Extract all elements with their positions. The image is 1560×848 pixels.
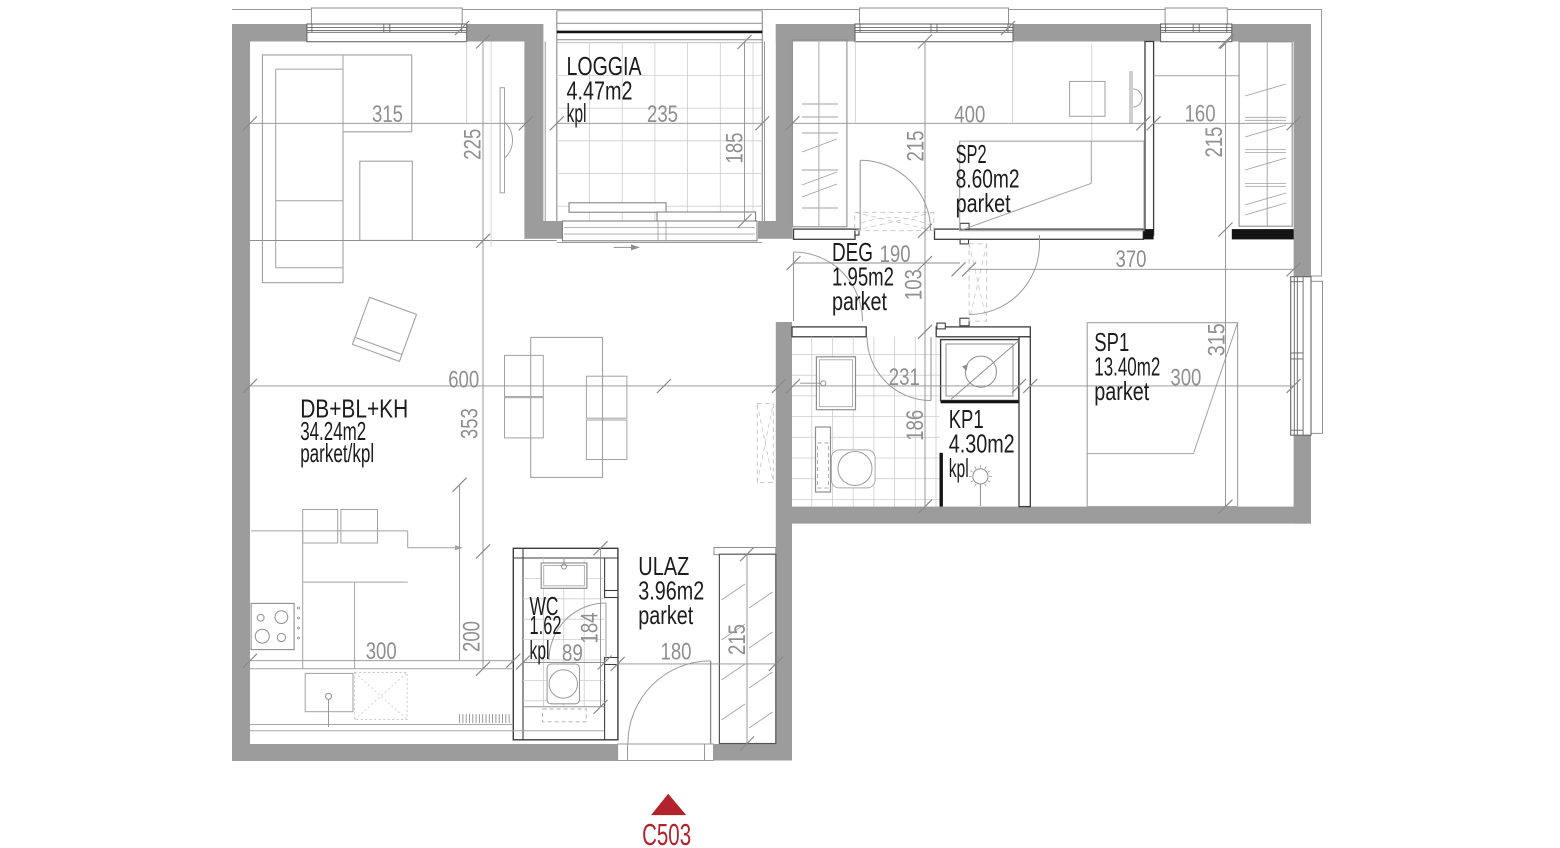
- svg-text:215: 215: [903, 131, 930, 162]
- svg-text:parket: parket: [832, 286, 888, 316]
- svg-text:89: 89: [562, 640, 583, 667]
- svg-text:parket/kpl: parket/kpl: [300, 438, 374, 468]
- svg-text:parket: parket: [956, 188, 1012, 218]
- svg-text:kpl: kpl: [567, 98, 587, 128]
- svg-text:200: 200: [459, 621, 486, 652]
- svg-text:400: 400: [954, 102, 985, 129]
- svg-text:parket: parket: [1094, 376, 1150, 406]
- svg-text:parket: parket: [638, 600, 694, 630]
- svg-text:160: 160: [1185, 100, 1216, 127]
- svg-text:315: 315: [1203, 323, 1230, 356]
- svg-text:235: 235: [647, 101, 678, 128]
- svg-text:kpl: kpl: [530, 635, 550, 665]
- svg-text:215: 215: [724, 624, 751, 655]
- svg-text:370: 370: [1116, 246, 1147, 273]
- svg-text:300: 300: [366, 638, 397, 665]
- svg-text:103: 103: [901, 269, 928, 300]
- svg-text:C503: C503: [642, 817, 691, 848]
- svg-text:186: 186: [902, 410, 929, 441]
- svg-text:225: 225: [460, 129, 487, 160]
- svg-text:600: 600: [448, 367, 479, 394]
- svg-text:185: 185: [721, 133, 748, 164]
- svg-text:315: 315: [372, 101, 403, 128]
- svg-text:215: 215: [1201, 127, 1228, 158]
- svg-text:kpl: kpl: [949, 453, 969, 483]
- svg-text:231: 231: [889, 364, 920, 391]
- svg-text:180: 180: [661, 638, 692, 665]
- svg-text:300: 300: [1170, 365, 1201, 392]
- svg-text:353: 353: [457, 408, 484, 439]
- svg-text:184: 184: [577, 613, 604, 644]
